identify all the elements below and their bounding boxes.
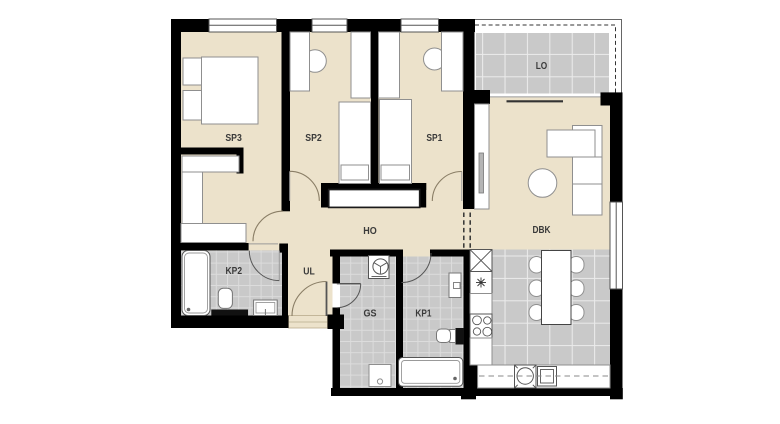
svg-text:LO: LO — [536, 61, 548, 72]
svg-text:SP3: SP3 — [225, 133, 242, 144]
svg-text:GS: GS — [364, 309, 377, 320]
svg-text:SP2: SP2 — [305, 133, 322, 144]
svg-text:KP2: KP2 — [226, 266, 243, 277]
svg-text:DBK: DBK — [533, 225, 552, 236]
svg-text:KP1: KP1 — [415, 309, 431, 320]
svg-text:UL: UL — [303, 267, 315, 278]
svg-text:SP1: SP1 — [426, 133, 442, 144]
svg-text:HO: HO — [363, 226, 377, 237]
